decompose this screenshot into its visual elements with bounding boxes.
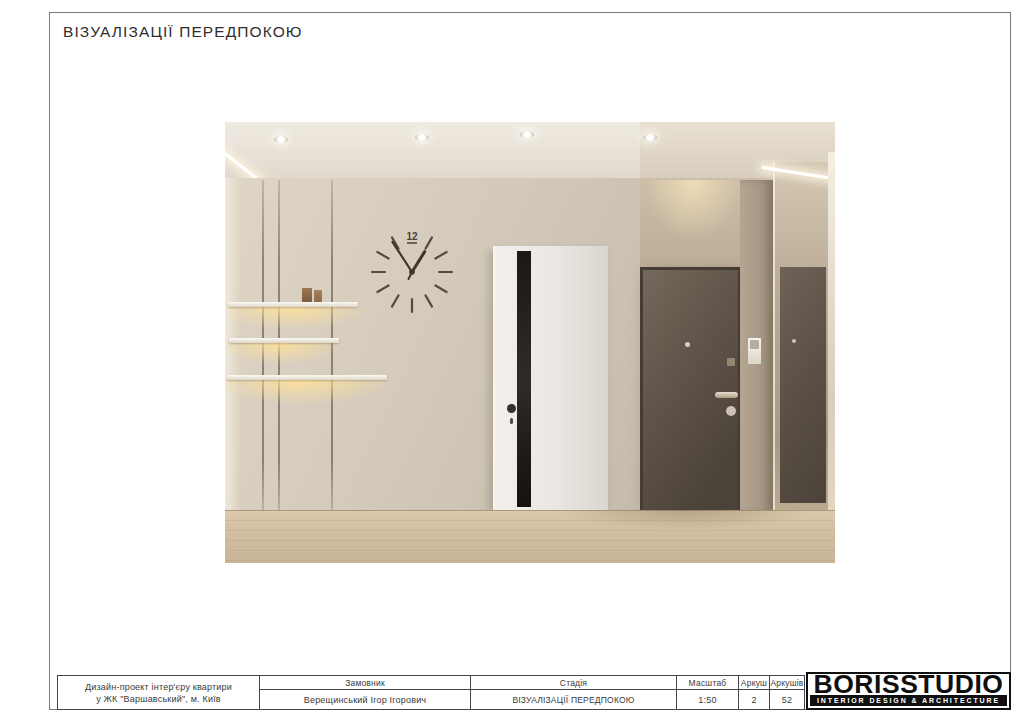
floating-shelf <box>228 302 358 307</box>
client-value: Верещинський Ігор Ігорович <box>259 690 470 709</box>
door-handle <box>507 404 516 413</box>
mirror-ceiling-led-reflection <box>761 166 835 181</box>
shelf-decor-candle <box>302 288 312 302</box>
ceiling-spotlight <box>415 134 429 141</box>
client-label: Замовник <box>259 676 470 690</box>
shelf-decor-candle <box>314 290 322 302</box>
mirror-peephole-reflection <box>792 339 796 343</box>
clock-minute-hand <box>392 242 412 272</box>
clock-hour-hand <box>412 252 425 272</box>
wall-washer-glow <box>643 180 743 265</box>
wall-clock: 12 <box>370 230 454 314</box>
entrance-door <box>640 267 741 510</box>
sheet-label: Аркуш <box>738 676 769 690</box>
door-lock <box>727 358 735 366</box>
project-line1: Дизайн-проект інтер'єру квартири <box>85 681 232 693</box>
stage-label: Стадія <box>470 676 676 690</box>
scale-label: Масштаб <box>676 676 738 690</box>
door-deadbolt-knob <box>726 406 736 416</box>
studio-logo: BORISSTUDIO INTERIOR DESIGN & ARCHITECTU… <box>806 672 1011 710</box>
project-line2: у ЖК "Варшавський", м. Київ <box>96 693 221 705</box>
mirror-edge-strip <box>828 152 835 562</box>
page-title: ВІЗУАЛІЗАЦІЇ ПЕРЕДПОКОЮ <box>63 23 303 41</box>
door-keyhole <box>510 418 513 424</box>
mirror-panel <box>773 162 828 562</box>
mirror-door-reflection <box>780 267 826 503</box>
ceiling-spotlight <box>274 136 288 143</box>
shelf-led-glow <box>227 342 342 372</box>
studio-logo-name: BORISSTUDIO <box>802 674 1015 695</box>
intercom-screen <box>750 340 759 349</box>
shelf-led-glow <box>227 306 369 338</box>
sheet-value: 2 <box>738 690 769 709</box>
scale-value: 1:50 <box>676 690 738 709</box>
floating-shelf <box>227 375 387 380</box>
door-glass-stripe <box>517 251 531 507</box>
clock-numeral-12: 12 <box>406 231 418 242</box>
total-sheets-label: Аркушів <box>769 676 804 690</box>
door-lever-handle <box>715 392 738 398</box>
ceiling-spotlight <box>643 134 657 141</box>
floor-shadow <box>555 510 815 530</box>
floating-shelf <box>229 338 339 343</box>
shelf-led-glow <box>225 379 393 413</box>
project-name-cell: Дизайн-проект інтер'єру квартири у ЖК "В… <box>58 676 259 709</box>
hallway-render: 12 <box>225 122 835 563</box>
total-sheets-value: 52 <box>769 690 804 709</box>
intercom-panel <box>748 338 761 364</box>
wall-column <box>740 180 773 514</box>
door-peephole <box>685 342 690 347</box>
interior-door-white <box>493 246 608 512</box>
ceiling-spotlight <box>520 131 534 138</box>
stage-value: ВІЗУАЛІЗАЦІЇ ПЕРЕДПОКОЮ <box>470 690 676 709</box>
title-block: Дизайн-проект інтер'єру квартири у ЖК "В… <box>57 675 805 710</box>
